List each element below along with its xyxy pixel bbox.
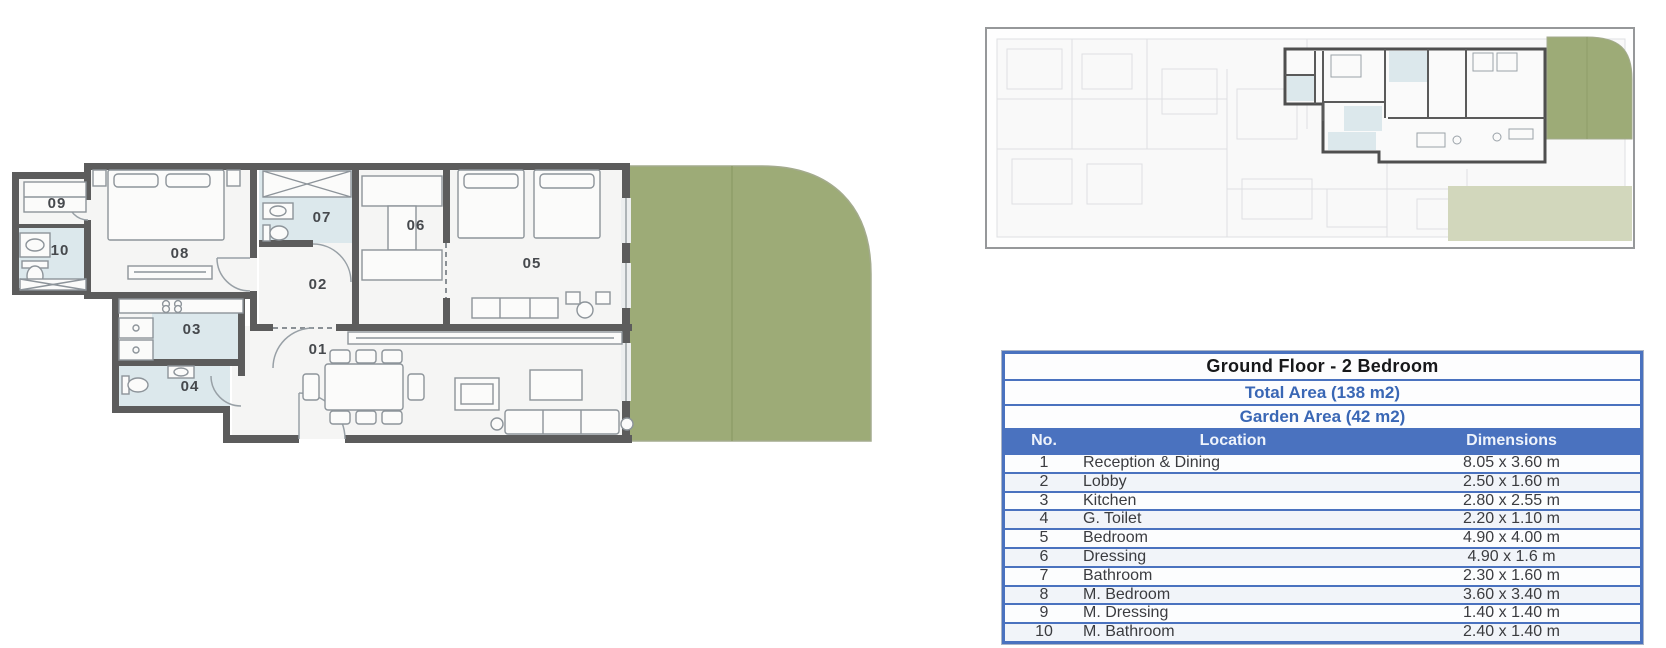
cell-no: 10 bbox=[1005, 624, 1083, 641]
table-row: 7 Bathroom 2.30 x 1.60 m bbox=[1005, 568, 1640, 587]
garden-area: Garden Area (42 m2) bbox=[1005, 406, 1640, 430]
table-row: 4 G. Toilet 2.20 x 1.10 m bbox=[1005, 511, 1640, 530]
room-label-07: 07 bbox=[313, 209, 332, 226]
cell-dimensions: 8.05 x 3.60 m bbox=[1383, 455, 1640, 474]
cell-no: 3 bbox=[1005, 493, 1083, 512]
overview-panel bbox=[985, 27, 1635, 249]
table-title-row: Ground Floor - 2 Bedroom bbox=[1005, 354, 1640, 381]
total-area-row: Total Area (138 m2) bbox=[1005, 381, 1640, 406]
room-label-01: 01 bbox=[309, 341, 328, 358]
column-header-location: Location bbox=[1083, 430, 1383, 455]
cell-no: 5 bbox=[1005, 530, 1083, 549]
column-header-no: No. bbox=[1005, 430, 1083, 455]
table-row: 3 Kitchen 2.80 x 2.55 m bbox=[1005, 493, 1640, 512]
overview-garden bbox=[1547, 37, 1632, 139]
cell-no: 8 bbox=[1005, 587, 1083, 606]
room-label-05: 05 bbox=[523, 255, 542, 272]
cell-location: Kitchen bbox=[1083, 493, 1383, 512]
overview-pale-garden bbox=[1448, 186, 1632, 241]
floor-plan-sheet: 01 02 03 04 05 06 07 08 09 10 bbox=[0, 0, 1666, 648]
room-label-04: 04 bbox=[181, 378, 200, 395]
cell-no: 2 bbox=[1005, 474, 1083, 493]
cell-location: Lobby bbox=[1083, 474, 1383, 493]
cell-location: M. Bathroom bbox=[1083, 624, 1383, 641]
cell-dimensions: 4.90 x 4.00 m bbox=[1383, 530, 1640, 549]
cell-dimensions: 3.60 x 3.40 m bbox=[1383, 587, 1640, 606]
table-row: 5 Bedroom 4.90 x 4.00 m bbox=[1005, 530, 1640, 549]
table-header-row: No. Location Dimensions bbox=[1005, 430, 1640, 455]
cell-location: Bathroom bbox=[1083, 568, 1383, 587]
room-label-06: 06 bbox=[407, 217, 426, 234]
cell-no: 4 bbox=[1005, 511, 1083, 530]
cell-location: Dressing bbox=[1083, 549, 1383, 568]
cell-location: Bedroom bbox=[1083, 530, 1383, 549]
room-label-08: 08 bbox=[171, 245, 190, 262]
garden-area bbox=[628, 166, 871, 441]
table-row: 9 M. Dressing 1.40 x 1.40 m bbox=[1005, 605, 1640, 624]
table-title: Ground Floor - 2 Bedroom bbox=[1005, 354, 1640, 381]
cell-dimensions: 2.50 x 1.60 m bbox=[1383, 474, 1640, 493]
cell-dimensions: 2.20 x 1.10 m bbox=[1383, 511, 1640, 530]
table-row: 6 Dressing 4.90 x 1.6 m bbox=[1005, 549, 1640, 568]
cell-no: 9 bbox=[1005, 605, 1083, 624]
table-row: 2 Lobby 2.50 x 1.60 m bbox=[1005, 474, 1640, 493]
cell-dimensions: 2.80 x 2.55 m bbox=[1383, 493, 1640, 512]
cell-dimensions: 2.30 x 1.60 m bbox=[1383, 568, 1640, 587]
cell-no: 6 bbox=[1005, 549, 1083, 568]
room-label-10: 10 bbox=[51, 242, 70, 259]
overview-key-plan bbox=[987, 29, 1633, 247]
column-header-dimensions: Dimensions bbox=[1383, 430, 1640, 455]
cell-location: M. Dressing bbox=[1083, 605, 1383, 624]
table-row: 10 M. Bathroom 2.40 x 1.40 m bbox=[1005, 624, 1640, 641]
overview-highlighted-unit bbox=[1285, 49, 1545, 162]
total-area: Total Area (138 m2) bbox=[1005, 381, 1640, 406]
room-label-02: 02 bbox=[309, 276, 328, 293]
info-table: Ground Floor - 2 Bedroom Total Area (138… bbox=[1002, 351, 1643, 644]
table-row: 8 M. Bedroom 3.60 x 3.40 m bbox=[1005, 587, 1640, 606]
cell-location: Reception & Dining bbox=[1083, 455, 1383, 474]
cell-location: G. Toilet bbox=[1083, 511, 1383, 530]
cell-no: 1 bbox=[1005, 455, 1083, 474]
info-table-panel: Ground Floor - 2 Bedroom Total Area (138… bbox=[1002, 351, 1643, 639]
cell-location: M. Bedroom bbox=[1083, 587, 1383, 606]
cell-no: 7 bbox=[1005, 568, 1083, 587]
table-row: 1 Reception & Dining 8.05 x 3.60 m bbox=[1005, 455, 1640, 474]
windows bbox=[621, 198, 631, 401]
cell-dimensions: 1.40 x 1.40 m bbox=[1383, 605, 1640, 624]
garden-area-row: Garden Area (42 m2) bbox=[1005, 406, 1640, 430]
cell-dimensions: 4.90 x 1.6 m bbox=[1383, 549, 1640, 568]
room-label-09: 09 bbox=[48, 195, 67, 212]
room-label-03: 03 bbox=[183, 321, 202, 338]
cell-dimensions: 2.40 x 1.40 m bbox=[1383, 624, 1640, 641]
main-floor-plan: 01 02 03 04 05 06 07 08 09 10 bbox=[0, 148, 890, 453]
